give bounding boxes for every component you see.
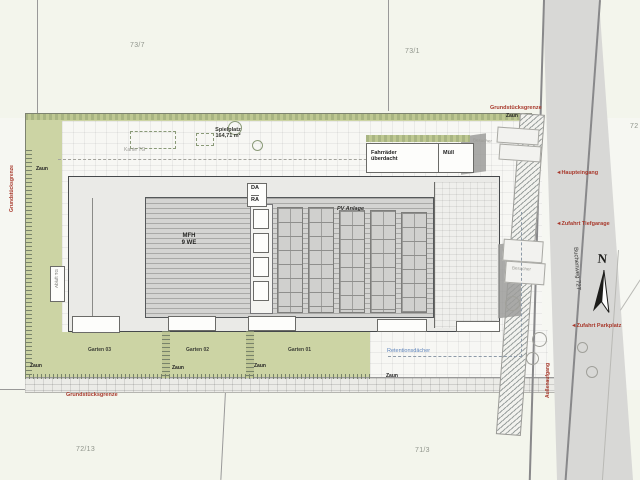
shelter-hedge — [366, 135, 470, 142]
top-hedge — [25, 114, 530, 120]
terrace — [168, 316, 216, 331]
core-box — [253, 257, 269, 277]
abluft-tg-label: Abluft TG — [54, 269, 59, 288]
north-label: N — [597, 252, 607, 268]
da-label: DA — [251, 185, 259, 191]
zaun-label: Zaun — [36, 167, 48, 173]
zufahrt-parkplatz-text: Zufahrt Parkplatz — [576, 323, 621, 329]
property-line-top — [25, 113, 532, 114]
pv-array — [308, 207, 334, 313]
ra-label: RA — [251, 195, 259, 203]
fahrraeder-label: Fahrräder überdacht — [371, 150, 398, 163]
parcel-label-73-1: 73/1 — [405, 48, 420, 56]
zufahrt-tiefgarage-label: ◄Zufahrt Tiefgarage — [556, 221, 610, 227]
retention-label: Retentionsdächer — [387, 348, 430, 354]
bottom-stone-strip — [25, 377, 562, 393]
terrace — [456, 321, 500, 332]
left-fence — [25, 150, 32, 378]
mfh-units-value: 9 WE — [172, 240, 206, 247]
garten-03-label: Garten 03 — [88, 348, 111, 354]
parcel-line-left — [37, 0, 38, 114]
mfh-line1: MFH — [172, 233, 206, 240]
tree-icon — [505, 296, 520, 311]
tree-icon — [526, 352, 539, 365]
abluft-tg-box: Abluft TG — [50, 266, 65, 302]
garden-green — [58, 331, 370, 378]
boundary-label-top: Grundstücksgrenze — [490, 105, 542, 111]
parking-stall — [502, 239, 543, 264]
tree-icon — [252, 140, 263, 151]
garden-fence — [162, 331, 170, 378]
boundary-label-left: Grundstücksgrenze — [10, 150, 16, 212]
tree-icon — [577, 342, 588, 353]
haupteingang-label: ◄Haupteingang — [556, 170, 598, 176]
muell-label: Müll — [443, 150, 454, 156]
tree-icon — [532, 332, 547, 347]
boundary-label-bottom: Grundstücksgrenze — [66, 392, 118, 398]
terrace — [72, 316, 120, 333]
garten-02-label: Garten 02 — [186, 348, 209, 354]
zaun-label: Zaun — [386, 374, 398, 380]
core-box — [253, 233, 269, 253]
shelter-divider — [438, 144, 439, 172]
parcel-label-72-13: 72/13 — [76, 446, 95, 454]
haupteingang-text: Haupteingang — [561, 170, 598, 176]
bike-shelter: Fahrräder überdacht Müll — [366, 143, 474, 173]
building-right-wing — [434, 182, 497, 328]
zufahrt-parkplatz-label: ◄Zufahrt Parkplatz — [571, 323, 621, 329]
core-box — [253, 281, 269, 301]
far-parcel-line-diag — [620, 260, 640, 311]
tg-outline-v — [521, 212, 522, 357]
kante-tg-label: Kante TG — [124, 148, 145, 154]
pv-array — [370, 210, 396, 313]
garden-fence-bottom — [25, 374, 370, 379]
garten-01-label: Garten 01 — [288, 348, 311, 354]
zaun-label: Zaun — [506, 114, 518, 120]
fahrraeder-line2: überdacht — [371, 156, 398, 162]
zaun-label: Zaun — [172, 366, 184, 372]
da-ra-box: DA RA — [247, 183, 267, 207]
terrace — [377, 319, 427, 332]
zaun-label: Zaun — [30, 364, 42, 370]
property-line-left — [25, 113, 26, 390]
core-box — [253, 209, 269, 229]
parcel-label-73-7: 73/7 — [130, 42, 145, 50]
garden-fence — [246, 331, 254, 378]
tree-icon — [586, 366, 598, 378]
terrace — [248, 316, 296, 331]
aussenaufgang-label: Außenaufgang — [546, 338, 552, 398]
parking-stall — [496, 127, 539, 146]
pv-array — [277, 207, 303, 313]
parcel-label-71-3: 71/3 — [415, 447, 430, 455]
spielplatz-area-value: 164,71 m² — [203, 133, 253, 139]
site-plan: DA RA Fahrräder überdacht Müll Abluft TG… — [0, 0, 640, 480]
parking-stall — [498, 144, 541, 163]
parcel-label-72-edge: 72 — [630, 123, 638, 131]
pv-array — [339, 210, 365, 313]
parcel-line-mid — [388, 0, 389, 111]
parcel-area-bottom — [0, 390, 640, 480]
tg-outline-h — [388, 356, 522, 357]
mfh-label: MFH 9 WE — [172, 233, 206, 247]
building-facade-line — [92, 198, 93, 316]
north-arrow-icon — [586, 267, 619, 315]
pv-anlage-label: PV Anlage — [337, 206, 364, 212]
north-compass: N — [586, 251, 620, 315]
zaun-label: Zaun — [254, 364, 266, 370]
parking-stall — [504, 261, 545, 286]
zufahrt-tiefgarage-text: Zufahrt Tiefgarage — [561, 221, 609, 227]
spielplatz-label: Spielplatz 164,71 m² — [203, 127, 253, 140]
pv-array — [401, 212, 427, 313]
